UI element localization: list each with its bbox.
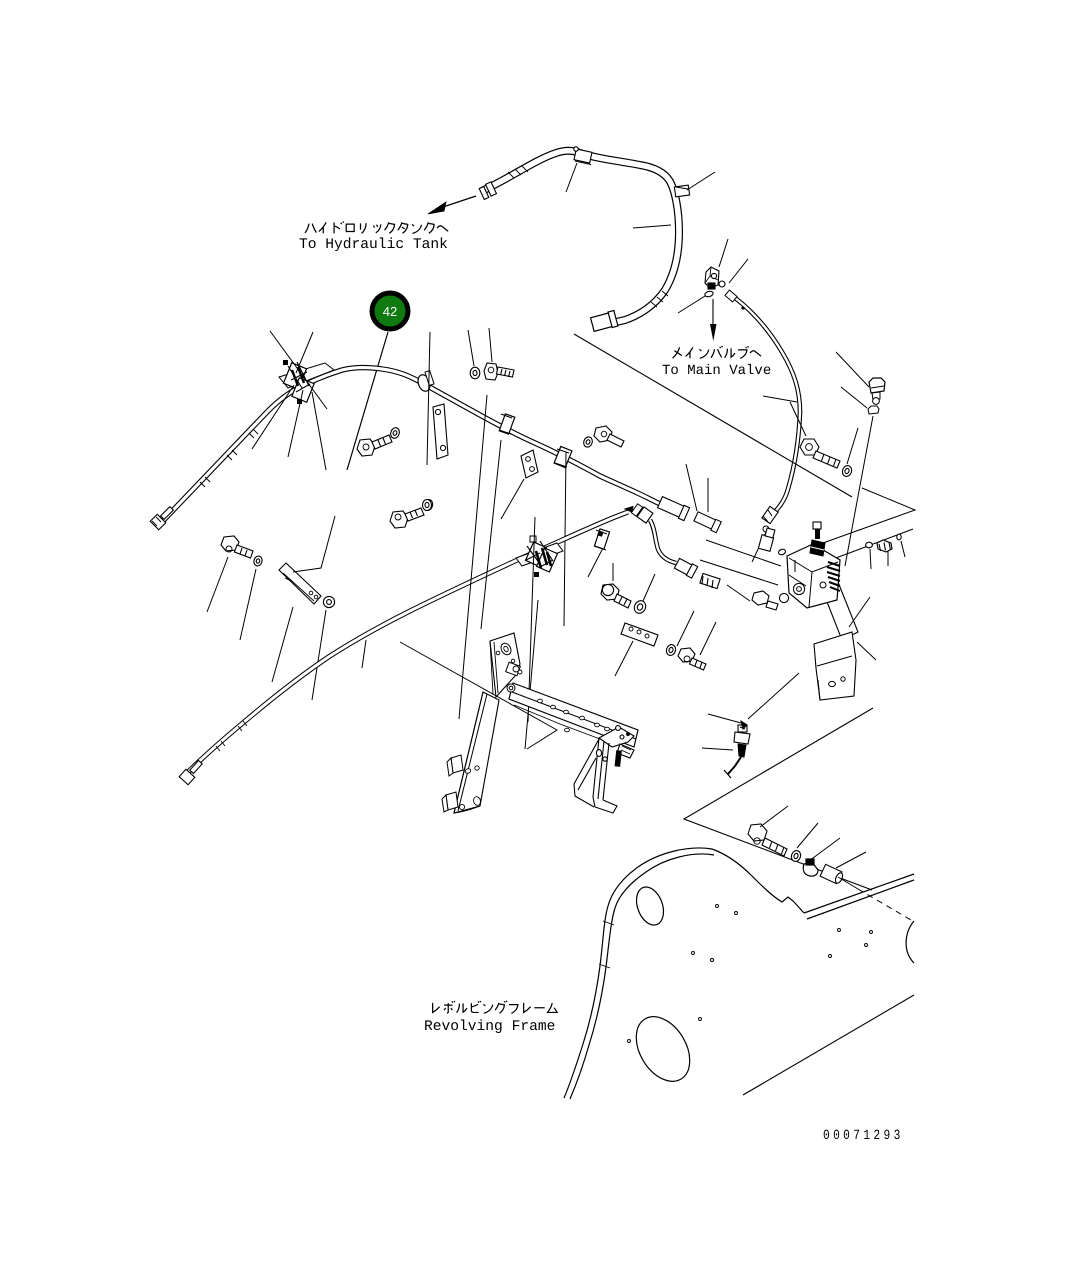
svg-text:To Main Valve: To Main Valve — [662, 363, 771, 379]
svg-text:To Hydraulic Tank: To Hydraulic Tank — [299, 237, 448, 253]
svg-text:42: 42 — [383, 304, 397, 319]
svg-text:00071293: 00071293 — [823, 1128, 904, 1144]
svg-text:Revolving Frame: Revolving Frame — [424, 1019, 555, 1035]
